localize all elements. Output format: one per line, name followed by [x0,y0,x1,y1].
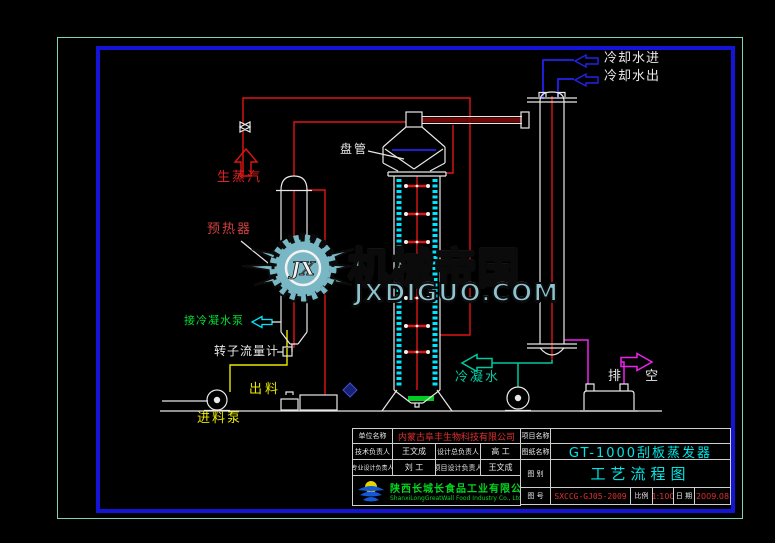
watermark: JX 机械帝国 JXDIGUO.COM [238,231,543,309]
tech-lead-label: 技术负责人 [352,443,393,460]
to-condensate-pump-label: 接冷凝水泵 [184,315,244,326]
project-designer-label: 项目设计负责人 [435,459,481,476]
project-name-label: 项目名称 [520,428,551,444]
cad-canvas: 生蒸汽 预热器 盘管 冷却水进 冷却水出 接冷凝水泵 转子流量计 出料 进料泵 … [0,0,775,543]
coil-label: 盘管 [340,143,368,155]
maker-cell: 陕西长城长食品工业有限公司 ShanxiLongGreatWall Food I… [352,475,521,506]
category: 工艺流程图 [550,459,731,488]
raw-steam-label: 生蒸汽 [217,171,262,184]
condensate-arrow [462,355,492,372]
cooling-water-in-label: 冷却水进 [604,52,660,65]
vent-label: 排 空 [608,370,668,383]
to-pump-arrow [252,317,281,328]
scale-value: 1:100 [652,487,674,505]
maker-cn: 陕西长城长食品工业有限公司 [390,480,521,495]
separator-head [383,127,445,171]
discharge-label: 出料 [249,383,281,396]
watermark-site: JXDIGUO.COM [354,278,559,307]
separator-neck [406,112,422,127]
date-value: 2009.08 [694,487,731,505]
cooling-water-out-label: 冷却水出 [604,70,660,83]
drawing-number: SXCCG-GJ05-2009 [550,487,631,505]
date-label: 日 期 [673,487,695,505]
unit-name-label: 单位名称 [352,428,393,444]
unit-name: 内蒙古阜丰生物科技有限公司 [392,428,521,444]
tech-lead: 王文成 [392,443,436,460]
watermark-logo-text: JX [288,258,316,280]
condensate-label: 冷凝水 [455,371,500,384]
watermark-logo: JX [238,231,356,307]
steam-valve [240,122,250,132]
maker-en: ShanxiLongGreatWall Food Industry Co., L… [390,495,521,502]
drawing-name: GT-1000刮板蒸发器 [550,443,731,460]
project-designer: 王文成 [480,459,521,476]
chief-designer-label: 设计总负责人 [435,443,481,460]
cooling-in-arrow [575,55,598,67]
vent-arrow [621,354,652,371]
valve-navy [343,383,357,397]
chief-designer: 高 工 [480,443,521,460]
condenser-inlet-flange [521,112,529,128]
motor-symbol [300,395,337,410]
drawing-name-label: 图纸名称 [520,443,551,460]
cooling-out-arrow [575,74,598,86]
feed-pump-label: 进料泵 [197,412,242,425]
rotameter-label: 转子流量计 [214,345,279,357]
maker-logo [356,478,386,504]
scale-label: 比例 [630,487,653,505]
vent-pump-symbol [584,391,634,410]
discipline-lead: 刘 工 [392,459,436,476]
number-label: 图 号 [520,487,551,505]
project-name [550,428,731,444]
coil-leader [368,151,404,159]
discharge-gate [408,396,434,401]
discipline-lead-label: 专业设计负责人 [352,459,393,476]
discharge-pump-symbol [281,399,298,410]
category-label: 图 别 [520,459,551,488]
